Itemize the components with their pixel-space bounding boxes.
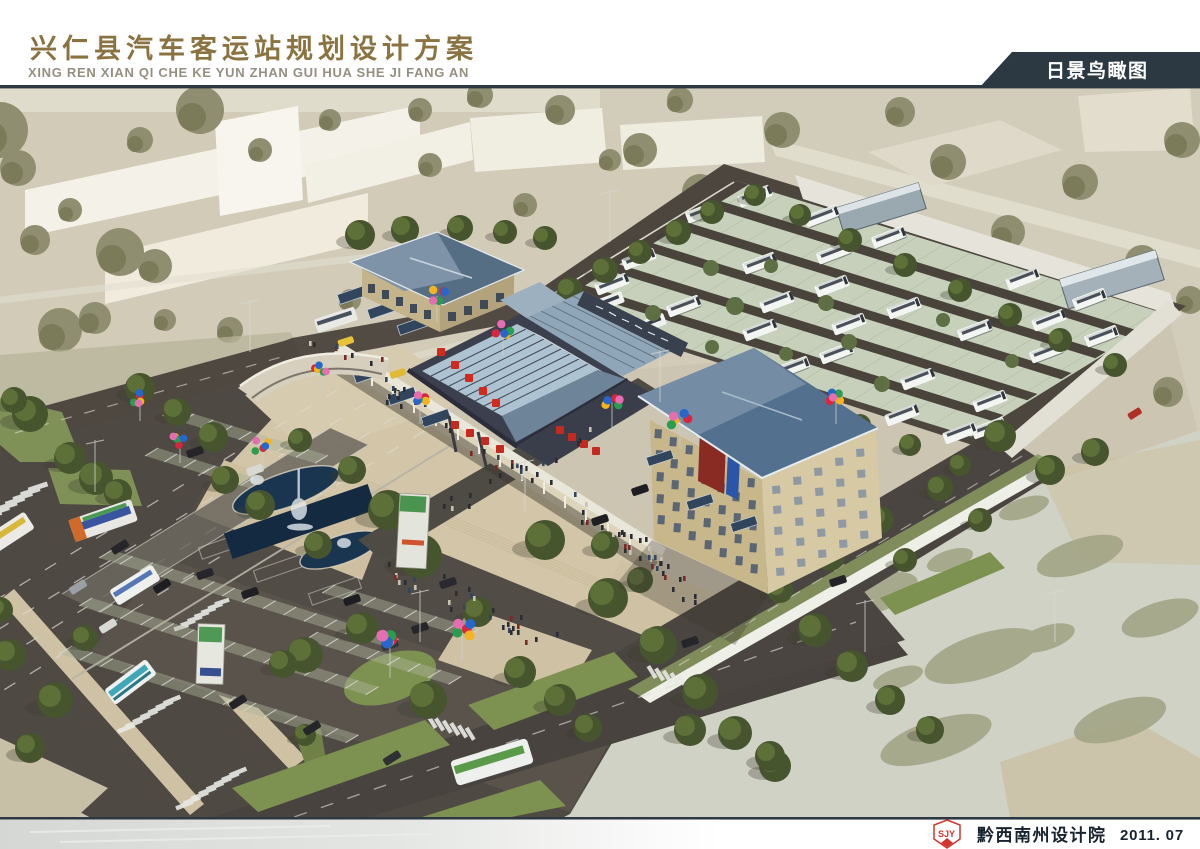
svg-text:日景鸟瞰图: 日景鸟瞰图 <box>1046 59 1149 82</box>
svg-text:2011. 07: 2011. 07 <box>1120 827 1184 844</box>
svg-text:黔西南州设计院: 黔西南州设计院 <box>977 825 1107 845</box>
svg-text:SJY: SJY <box>938 829 955 839</box>
svg-text:兴仁县汽车客运站规划设计方案: 兴仁县汽车客运站规划设计方案 <box>30 33 478 64</box>
svg-text:XING REN XIAN QI CHE KE YUN ZH: XING REN XIAN QI CHE KE YUN ZHAN GUI HUA… <box>28 65 469 80</box>
